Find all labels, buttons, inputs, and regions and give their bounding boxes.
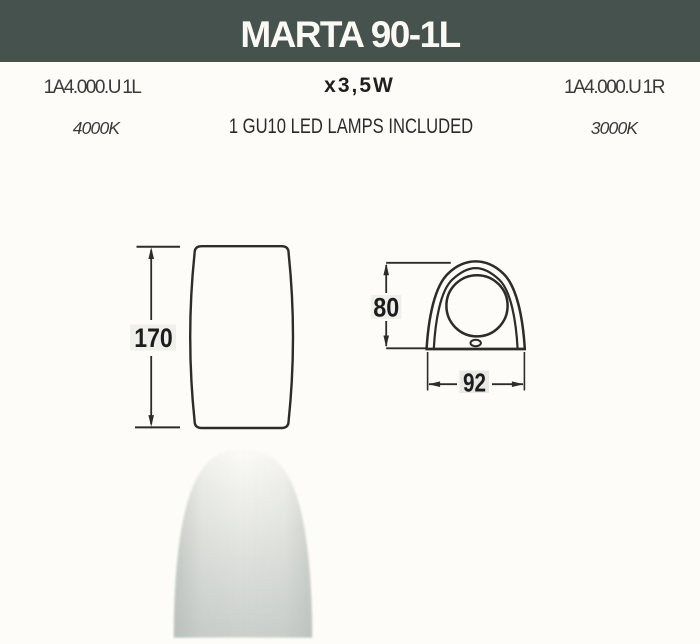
svg-text:80: 80 [373,293,399,323]
svg-text:92: 92 [463,368,486,398]
svg-text:170: 170 [134,323,173,353]
